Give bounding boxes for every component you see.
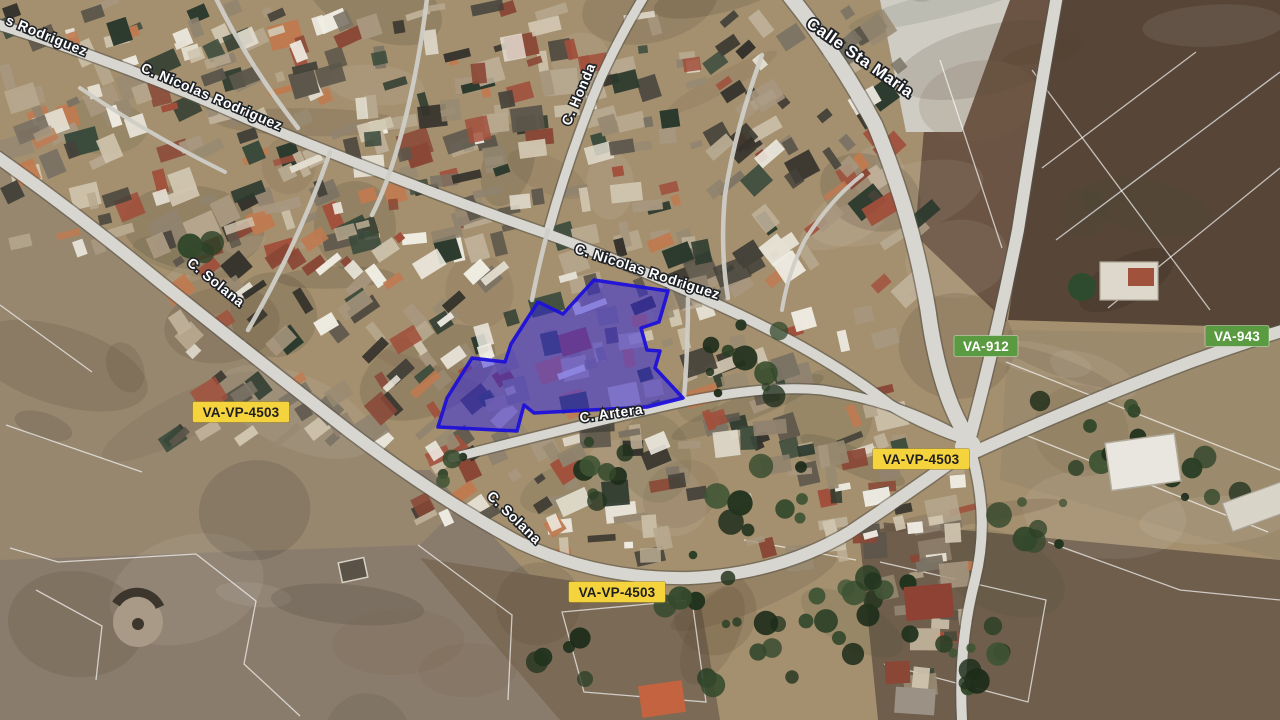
- tree: [754, 611, 778, 635]
- tree: [569, 627, 590, 648]
- building: [624, 542, 633, 549]
- tree: [864, 572, 882, 590]
- building: [439, 99, 461, 122]
- tree: [714, 389, 723, 398]
- tree: [733, 346, 758, 371]
- building: [931, 618, 949, 629]
- building: [392, 20, 405, 34]
- tree: [770, 322, 789, 341]
- building: [712, 429, 740, 458]
- tree: [1030, 391, 1050, 411]
- badge-va-943: VA-943: [1205, 326, 1269, 347]
- building: [355, 97, 368, 120]
- building: [638, 45, 648, 54]
- tree: [598, 463, 616, 481]
- tree: [703, 337, 720, 354]
- building: [531, 188, 545, 205]
- tree: [1204, 489, 1220, 505]
- tree: [785, 670, 798, 683]
- building: [482, 145, 507, 168]
- building: [500, 33, 527, 62]
- tree: [966, 643, 975, 652]
- tree: [722, 345, 735, 358]
- tree: [814, 609, 838, 633]
- tree: [1054, 539, 1064, 549]
- tree: [1059, 499, 1067, 507]
- tree: [984, 617, 1002, 635]
- tree: [832, 631, 846, 645]
- badge-va-vp-4503-west: VA-VP-4503: [193, 402, 290, 423]
- building: [682, 57, 701, 73]
- tree: [901, 625, 918, 642]
- building: [907, 521, 924, 534]
- tree: [436, 474, 450, 488]
- tree: [584, 437, 594, 447]
- badge-va-vp-4503-south: VA-VP-4503: [569, 582, 666, 603]
- tree: [935, 635, 953, 653]
- tree: [959, 677, 972, 690]
- tree: [735, 319, 746, 330]
- house-right: [1105, 433, 1181, 490]
- tree: [762, 638, 782, 658]
- tree: [749, 454, 773, 478]
- building: [610, 182, 643, 204]
- tree: [443, 450, 462, 469]
- tree: [577, 671, 593, 687]
- red-roof-building: [904, 583, 955, 621]
- tree: [200, 231, 224, 255]
- building: [678, 441, 701, 449]
- tree: [732, 617, 741, 626]
- svg-text:VA-912: VA-912: [963, 339, 1009, 354]
- shed-bottom: [894, 687, 936, 716]
- tree: [796, 493, 808, 505]
- svg-text:VA-943: VA-943: [1214, 329, 1260, 344]
- tree: [986, 502, 1012, 528]
- building: [912, 666, 930, 689]
- badge-va-vp-4503-junction: VA-VP-4503: [873, 449, 970, 470]
- map-image: s Rodriguez C. Nicolas Rodriguez C. Hond…: [0, 0, 1280, 720]
- building: [518, 139, 547, 159]
- tree: [1181, 493, 1189, 501]
- satellite-map-canvas[interactable]: s Rodriguez C. Nicolas Rodriguez C. Hond…: [0, 0, 1280, 720]
- tree: [668, 586, 692, 610]
- tree: [762, 383, 771, 392]
- tree: [1068, 460, 1084, 476]
- tree: [721, 571, 736, 586]
- building: [950, 474, 967, 488]
- tree: [722, 620, 730, 628]
- tree: [837, 579, 854, 596]
- tree: [1194, 446, 1217, 469]
- building: [640, 548, 661, 563]
- house-top-right-roof: [1128, 268, 1154, 286]
- tree: [706, 368, 714, 376]
- building: [658, 127, 677, 144]
- tree: [689, 551, 698, 560]
- badge-va-912: VA-912: [954, 336, 1018, 357]
- tree: [579, 455, 600, 476]
- building: [470, 62, 487, 84]
- building: [510, 105, 545, 133]
- tree: [842, 643, 864, 665]
- tree: [1029, 520, 1047, 538]
- svg-text:VA-VP-4503: VA-VP-4503: [883, 452, 960, 467]
- building: [612, 165, 625, 177]
- tree: [178, 234, 203, 259]
- building: [364, 131, 382, 147]
- tree: [1124, 399, 1138, 413]
- tree: [799, 614, 814, 629]
- orange-court: [638, 680, 686, 718]
- yard-trees: [1068, 273, 1096, 301]
- tree: [986, 642, 1010, 666]
- building: [643, 116, 653, 128]
- tree: [754, 361, 778, 385]
- building: [944, 523, 961, 543]
- svg-text:VA-VP-4503: VA-VP-4503: [579, 585, 656, 600]
- building: [668, 472, 687, 489]
- svg-text:VA-VP-4503: VA-VP-4503: [203, 405, 280, 420]
- tree: [775, 499, 794, 518]
- tree: [1083, 419, 1097, 433]
- tree: [727, 490, 752, 515]
- ruin-building: [338, 558, 368, 583]
- threshing-circle-center: [132, 618, 144, 630]
- tree: [587, 488, 598, 499]
- tree: [742, 524, 755, 537]
- tree: [704, 483, 730, 509]
- tree: [526, 651, 548, 673]
- building: [388, 199, 399, 211]
- building: [885, 661, 911, 684]
- building: [659, 108, 680, 128]
- tree: [809, 588, 826, 605]
- tree: [795, 461, 807, 473]
- building: [509, 193, 531, 210]
- tree: [701, 673, 725, 697]
- tree: [1017, 497, 1027, 507]
- tree: [617, 445, 634, 462]
- tree: [795, 513, 806, 524]
